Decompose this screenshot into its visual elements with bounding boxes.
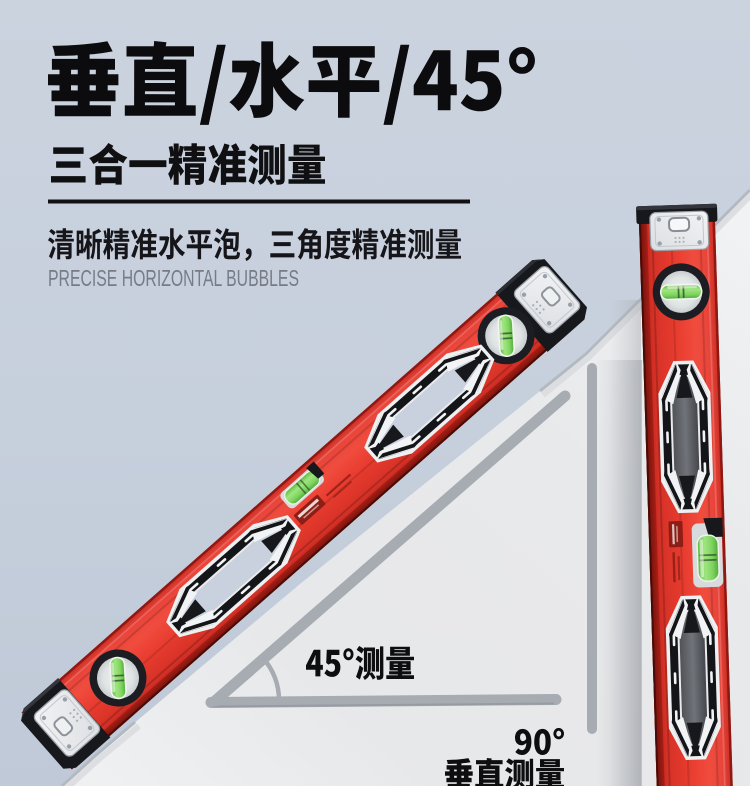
svg-text:PRECISE HORIZONTAL BUBBLES: PRECISE HORIZONTAL BUBBLES: [48, 265, 299, 291]
